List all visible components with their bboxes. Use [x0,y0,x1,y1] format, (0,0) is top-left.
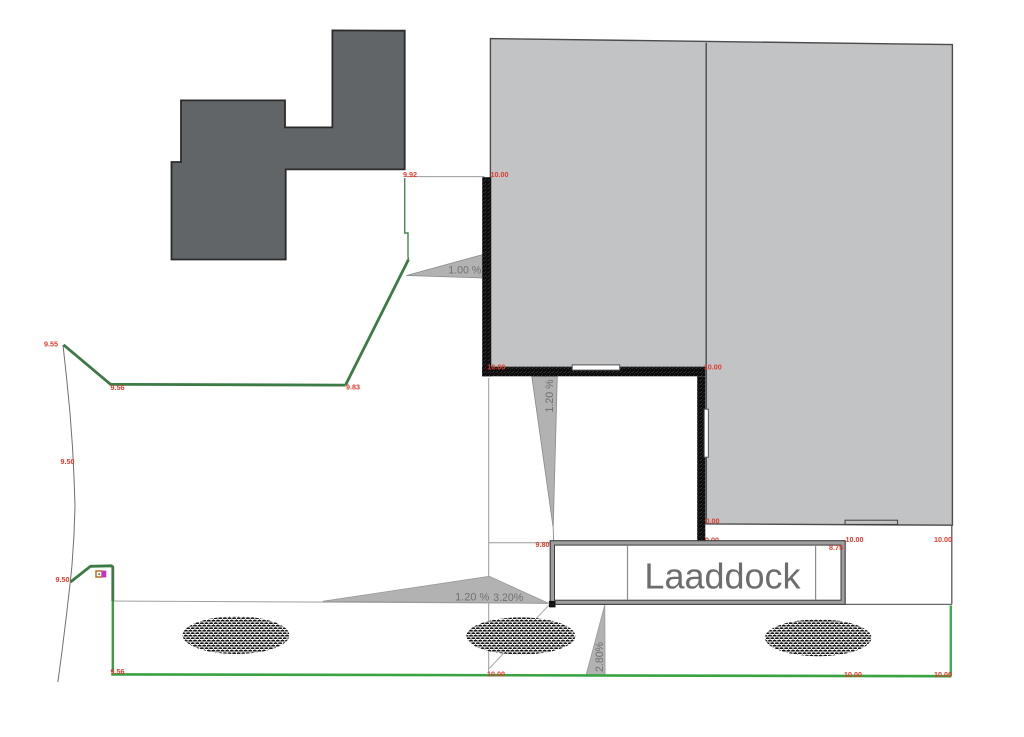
svg-text:1.00 %: 1.00 % [448,265,482,277]
svg-text:10.00: 10.00 [934,670,952,679]
svg-text:9.56: 9.56 [111,667,125,676]
svg-text:9.50: 9.50 [56,575,70,584]
svg-text:10.00: 10.00 [487,362,505,371]
svg-text:10.00: 10.00 [491,170,509,179]
svg-text:2.80%: 2.80% [594,641,606,672]
svg-text:1.20 %: 1.20 % [544,379,556,413]
svg-text:10.00: 10.00 [704,363,722,372]
svg-text:9.55: 9.55 [44,339,58,348]
svg-text:1.20 %: 1.20 % [455,592,489,604]
svg-text:10.00: 10.00 [846,535,864,544]
svg-text:9.50: 9.50 [61,457,75,466]
svg-text:8.75: 8.75 [829,543,843,552]
svg-text:9.80: 9.80 [536,540,550,549]
svg-text:10.00: 10.00 [934,535,952,544]
svg-text:9.92: 9.92 [403,170,417,179]
svg-text:9.56: 9.56 [111,383,125,392]
svg-text:10.00: 10.00 [844,670,862,679]
svg-text:10.00: 10.00 [487,669,505,678]
svg-text:9.83: 9.83 [346,382,360,391]
svg-text:3.20%: 3.20% [493,592,524,604]
svg-text:Laaddock: Laaddock [644,556,801,597]
